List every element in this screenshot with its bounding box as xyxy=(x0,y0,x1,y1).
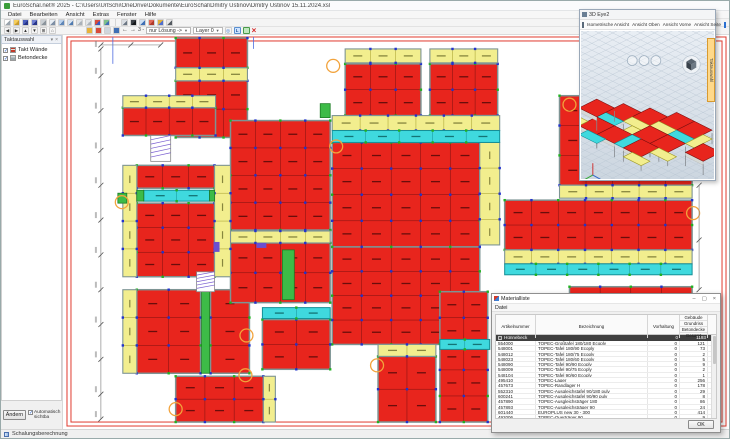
zoom-all-icon[interactable]: ⌂ xyxy=(49,27,56,34)
takt-slab-icon[interactable] xyxy=(95,27,102,34)
menu-datei[interactable]: Datei xyxy=(495,305,507,311)
cell-artikelnummer: 548023 xyxy=(496,357,536,361)
maximize-icon[interactable]: ▢ xyxy=(700,296,709,302)
target-icon[interactable]: ◎ xyxy=(225,27,232,34)
cell-gesamt: 1 xyxy=(680,373,708,377)
cell-vorhaltung: 0 xyxy=(648,367,680,371)
cell-gesamt: 178 xyxy=(680,383,708,387)
sidebar-item-label: Takt Wände xyxy=(18,47,48,53)
sidebar-item-label: Betondecke xyxy=(18,55,48,61)
material-title-bar[interactable]: Materialliste – ▢ × xyxy=(492,294,720,304)
cell-gesamt: 86 xyxy=(680,399,708,403)
scrollbar-thumb[interactable] xyxy=(713,336,716,364)
print-icon[interactable] xyxy=(40,19,47,26)
measure-icon[interactable] xyxy=(121,19,128,26)
cell-vorhaltung: 0 xyxy=(648,352,680,356)
panel-header: Taktauswahl ▾ × xyxy=(1,35,62,44)
cell-artikelnummer: 492006 xyxy=(496,415,536,419)
cell-vorhaltung: 0 xyxy=(648,405,680,409)
cell-bezeichnung: TOPEC-Randlager H xyxy=(536,383,648,387)
checkbox-icon[interactable]: ✓ xyxy=(3,48,8,53)
zoom-window-icon[interactable]: ⊞ xyxy=(40,27,47,34)
insert-image-icon[interactable] xyxy=(103,19,110,26)
layer-dropdown[interactable]: Layer 0▼ xyxy=(193,27,223,34)
dimension-icon[interactable] xyxy=(139,19,146,26)
cell-vorhaltung: 0 xyxy=(648,373,680,377)
cell-bezeichnung: TOPEC-Tafel 180/60 Ecoply xyxy=(536,357,648,361)
cell-gesamt: 2 xyxy=(680,367,708,371)
pan-up-icon[interactable]: ▲ xyxy=(22,27,29,34)
panel-footer: Ändern ✓ Automatisch sichtba xyxy=(1,401,62,429)
cell-vorhaltung: 0 xyxy=(648,399,680,403)
cell-artikelnummer: 554000 xyxy=(496,341,536,345)
cell-vorhaltung: 0 xyxy=(648,394,680,398)
cell-artikelnummer: 552310 xyxy=(496,389,536,393)
takt-selection-tab[interactable]: Taktauswahl xyxy=(707,38,715,102)
cube-icon xyxy=(582,22,584,28)
cell-gesamt: 5 xyxy=(680,357,708,361)
menu-ansicht[interactable]: Ansicht xyxy=(62,12,89,18)
format-paint-icon[interactable] xyxy=(94,19,101,26)
cell-bezeichnung: TOPEC-Lager xyxy=(536,378,648,382)
menu-datei[interactable]: Datei xyxy=(4,12,26,18)
ok-button[interactable]: OK xyxy=(688,420,714,429)
solution-view-toggle[interactable]: L xyxy=(234,27,241,34)
pan-down-icon[interactable]: ▼ xyxy=(31,27,38,34)
viewer3d-viewport[interactable] xyxy=(581,31,714,179)
save-icon[interactable] xyxy=(22,19,29,26)
material-table: Artikelnummer Bezeichnung Vorhaltung Geb… xyxy=(495,314,717,419)
status-text: Schalungsberechnung xyxy=(12,431,68,437)
pan-right-icon[interactable]: ▶ xyxy=(13,27,20,34)
table-row[interactable]: 492006TOPEC-Querträger 9009 xyxy=(496,415,716,419)
cell-artikelnummer: 495410 xyxy=(496,378,536,382)
close-takt-icon[interactable]: × xyxy=(252,27,257,34)
view-front-button[interactable]: Ansicht Vorne xyxy=(663,22,691,27)
viewer3d-icon xyxy=(582,12,587,17)
cell-artikelnummer: 457673 xyxy=(496,383,536,387)
cell-gesamt: 414 xyxy=(680,410,708,414)
cell-artikelnummer: 457890 xyxy=(496,399,536,403)
material-list-window: Materialliste – ▢ × Datei Artikelnummer … xyxy=(491,293,721,433)
collapse-icon[interactable]: - xyxy=(498,336,502,340)
table-body: 554000TOPEC-Großtafel 180/180 Ecoply0121… xyxy=(496,341,716,419)
solution-dropdown-value: nur Lösung -> xyxy=(149,28,182,34)
layer-dropdown-value: Layer 0 xyxy=(196,28,214,34)
sidebar-item-0[interactable]: ✓Takt Wände xyxy=(3,46,60,54)
nav-icon-group: ◀▶▲▼⊞⌂ xyxy=(4,27,56,34)
cell-artikelnummer: 601440 xyxy=(496,410,536,414)
export-icon[interactable] xyxy=(67,19,74,26)
view3d-icon[interactable] xyxy=(243,27,250,34)
material-menu-bar: Datei xyxy=(492,304,720,312)
cell-bezeichnung: TOPEC-Querträger 90 xyxy=(536,415,648,419)
panel-title: Taktauswahl xyxy=(4,37,50,43)
sidebar-item-1[interactable]: ✓Betondecke xyxy=(3,54,60,62)
viewer3d-toolbar: Isometrische Ansicht Ansicht Oben Ansich… xyxy=(580,20,715,30)
cell-vorhaltung: 0 xyxy=(648,383,680,387)
zoom-icon[interactable] xyxy=(166,19,173,26)
page-setup-icon[interactable] xyxy=(58,19,65,26)
cell-gesamt: 73 xyxy=(680,346,708,350)
application-window: EuroSchal.net® 2025 - C:\Users\UrlSchi\O… xyxy=(0,0,730,439)
save-all-icon[interactable] xyxy=(31,19,38,26)
cell-gesamt: 9 xyxy=(680,362,708,366)
cell-bezeichnung: EUROPLUS new 30 - 300 xyxy=(536,410,648,414)
chevron-down-icon: ▼ xyxy=(216,28,220,33)
cell-artikelnummer: 548104 xyxy=(496,373,536,377)
close-icon[interactable]: × xyxy=(54,37,59,43)
print-preview-icon[interactable] xyxy=(49,19,56,26)
cell-vorhaltung: 0 xyxy=(648,341,680,345)
cell-vorhaltung: 0 xyxy=(648,378,680,382)
cell-bezeichnung: TOPEC-Ausgleichsträger 90 xyxy=(536,405,648,409)
cell-gesamt: 9 xyxy=(680,415,708,419)
takt-number-label: 3 - xyxy=(138,27,144,34)
solution-dropdown[interactable]: nur Lösung ->▼ xyxy=(146,27,191,34)
viewer3d-window: 3D Eye2 Isometrische Ansicht Ansicht Obe… xyxy=(579,9,716,181)
iso-root xyxy=(581,31,714,179)
undo-icon[interactable] xyxy=(76,19,83,26)
table-scrollbar[interactable] xyxy=(711,335,716,418)
iso-scene xyxy=(581,31,714,179)
cell-bezeichnung: TOPEC-Tafel 180/75 Ecoply xyxy=(536,352,648,356)
cell-artikelnummer: 548012 xyxy=(496,352,536,356)
cell-artikelnummer: 600241 xyxy=(496,394,536,398)
wall-icon xyxy=(10,47,16,53)
cell-bezeichnung: TOPEC-Tafel 90/60 Ecoply xyxy=(536,373,648,377)
view-side-button[interactable]: Ansicht Seite xyxy=(694,22,721,27)
viewer3d-title-bar[interactable]: 3D Eye2 xyxy=(580,10,715,20)
cell-bezeichnung: TOPEC-Ausgleichstafel 90/180 pulv xyxy=(536,389,648,393)
checkbox-icon[interactable]: ✓ xyxy=(28,410,33,415)
menu-hilfe[interactable]: Hilfe xyxy=(141,12,161,18)
next-takt-button[interactable]: → xyxy=(130,27,136,34)
cell-gesamt: 8 xyxy=(680,394,708,398)
takt-walls-icon[interactable] xyxy=(86,27,93,34)
view-top-button[interactable]: Ansicht Oben xyxy=(632,22,660,27)
checkbox-label: Automatisch sichtba xyxy=(34,410,60,420)
cell-bezeichnung: TOPEC-Tafel 90/75 Ecoply xyxy=(536,367,648,371)
material-window-icon xyxy=(494,296,499,301)
takt-icon-group xyxy=(86,27,120,34)
checkbox-icon[interactable]: ✓ xyxy=(3,56,8,61)
cell-gesamt: 24 xyxy=(680,405,708,409)
cell-bezeichnung: TOPEC-Ausgleichsträger 180 xyxy=(536,399,648,403)
chevron-down-icon: ▼ xyxy=(184,28,188,33)
cell-artikelnummer: 457893 xyxy=(496,405,536,409)
cell-vorhaltung: 0 xyxy=(648,362,680,366)
cell-vorhaltung: 0 xyxy=(648,357,680,361)
cell-artikelnummer: 548090 xyxy=(496,362,536,366)
cell-gesamt: 29 xyxy=(680,389,708,393)
open-folder-icon[interactable] xyxy=(13,19,20,26)
close-icon[interactable]: × xyxy=(711,296,718,302)
takt-table-icon[interactable] xyxy=(157,19,164,26)
prev-takt-button[interactable]: ← xyxy=(122,27,128,34)
view-isometric-button[interactable]: Isometrische Ansicht xyxy=(587,22,629,27)
menu-extras[interactable]: Extras xyxy=(89,12,113,18)
minimize-icon[interactable]: – xyxy=(691,296,698,302)
cell-artikelnummer: 548001 xyxy=(496,346,536,350)
table-header: Artikelnummer Bezeichnung Vorhaltung Geb… xyxy=(496,315,716,335)
menu-fenster[interactable]: Fenster xyxy=(113,12,141,18)
cell-artikelnummer: 548009 xyxy=(496,367,536,371)
view-mode-icon[interactable] xyxy=(113,27,120,34)
cell-bezeichnung: TOPEC-Ausgleichstafel 90/90 pulv xyxy=(536,394,648,398)
cell-gesamt: 121 xyxy=(680,341,708,345)
app-icon xyxy=(4,3,10,9)
cell-gesamt: 256 xyxy=(680,378,708,382)
slab-icon xyxy=(10,55,16,61)
viewer3d-title: 3D Eye2 xyxy=(589,12,609,18)
redo-icon[interactable] xyxy=(85,19,92,26)
takt-tree: ✓Takt Wände✓Betondecke xyxy=(1,44,62,401)
cell-vorhaltung: 0 xyxy=(648,389,680,393)
select-cursor-icon[interactable] xyxy=(130,19,137,26)
auto-visible-checkbox[interactable]: ✓ Automatisch sichtba xyxy=(28,410,60,420)
cell-vorhaltung: 0 xyxy=(648,415,680,419)
cell-gesamt: 2 xyxy=(680,352,708,356)
panel-toggle-icon[interactable] xyxy=(724,22,726,28)
cell-vorhaltung: 0 xyxy=(648,346,680,350)
cell-bezeichnung: TOPEC-Tafel 90/90 Ecoply xyxy=(536,362,648,366)
takt-selection-panel: Taktauswahl ▾ × ✓Takt Wände✓Betondecke Ä… xyxy=(1,35,63,429)
change-button[interactable]: Ändern xyxy=(3,410,26,420)
cell-bezeichnung: TOPEC-Großtafel 180/180 Ecoply xyxy=(536,341,648,345)
window-title: EuroSchal.net® 2025 - C:\Users\UrlSchi\O… xyxy=(13,3,330,9)
material-window-title: Materialliste xyxy=(501,296,689,302)
pause-icon[interactable] xyxy=(104,27,111,34)
new-file-icon[interactable] xyxy=(4,19,11,26)
status-icon xyxy=(4,432,9,437)
menu-bearbeiten[interactable]: Bearbeiten xyxy=(26,12,62,18)
pan-left-icon[interactable]: ◀ xyxy=(4,27,11,34)
snap-point-icon[interactable] xyxy=(148,19,155,26)
cell-vorhaltung: 0 xyxy=(648,410,680,414)
toolbar-separator xyxy=(115,19,116,26)
cell-bezeichnung: TOPEC-Tafel 180/90 Ecoply xyxy=(536,346,648,350)
